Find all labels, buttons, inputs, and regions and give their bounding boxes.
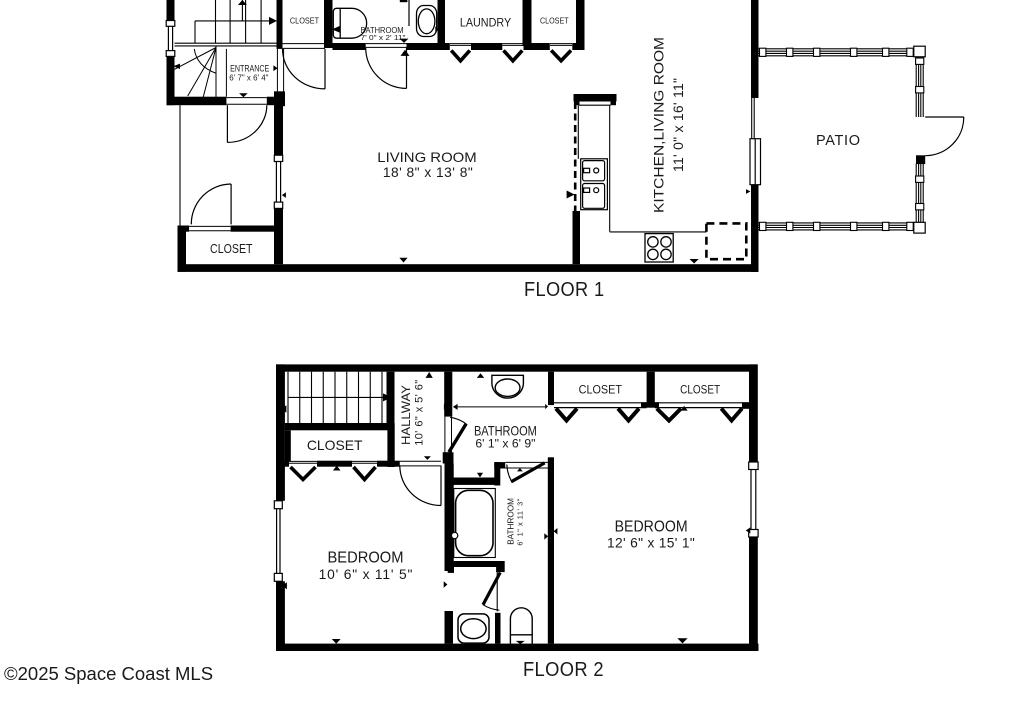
svg-text:BEDROOM: BEDROOM (615, 518, 688, 535)
svg-text:CLOSET: CLOSET (540, 16, 569, 25)
svg-text:FLOOR 1: FLOOR 1 (524, 279, 605, 301)
svg-text:6' 1" x 6' 9": 6' 1" x 6' 9" (475, 437, 535, 451)
svg-text:BEDROOM: BEDROOM (328, 549, 404, 566)
svg-text:18' 8" x 13' 8": 18' 8" x 13' 8" (383, 165, 473, 180)
svg-text:11' 0" x 16' 11": 11' 0" x 16' 11" (670, 78, 686, 172)
svg-text:CLOSET: CLOSET (290, 16, 319, 25)
svg-text:PATIO: PATIO (816, 133, 860, 149)
svg-text:CLOSET: CLOSET (307, 438, 363, 453)
svg-text:HALLWAY: HALLWAY (399, 385, 413, 445)
svg-text:FLOOR 2: FLOOR 2 (523, 659, 604, 681)
svg-text:12' 6" x 15' 1": 12' 6" x 15' 1" (607, 535, 695, 550)
svg-text:10' 6" x 11' 5": 10' 6" x 11' 5" (319, 567, 413, 582)
svg-text:ENTRANCE: ENTRANCE (230, 64, 269, 74)
svg-text:CLOSET: CLOSET (210, 241, 253, 256)
svg-text:LIVING ROOM: LIVING ROOM (377, 149, 476, 165)
svg-text:BATHROOM: BATHROOM (506, 498, 516, 545)
svg-text:10' 6" x 5' 6": 10' 6" x 5' 6" (413, 380, 425, 446)
svg-text:LAUNDRY: LAUNDRY (460, 15, 511, 29)
svg-text:CLOSET: CLOSET (680, 382, 721, 396)
svg-text:6' 7" x 6' 4": 6' 7" x 6' 4" (229, 74, 268, 83)
svg-text:7' 0" x 2' 11": 7' 0" x 2' 11" (361, 33, 406, 42)
svg-text:KITCHEN,LIVING ROOM: KITCHEN,LIVING ROOM (651, 37, 667, 213)
svg-text:©2025 Space Coast MLS: ©2025 Space Coast MLS (4, 663, 213, 684)
svg-text:6' 1" x 11' 3": 6' 1" x 11' 3" (515, 498, 524, 545)
svg-text:CLOSET: CLOSET (579, 382, 623, 396)
